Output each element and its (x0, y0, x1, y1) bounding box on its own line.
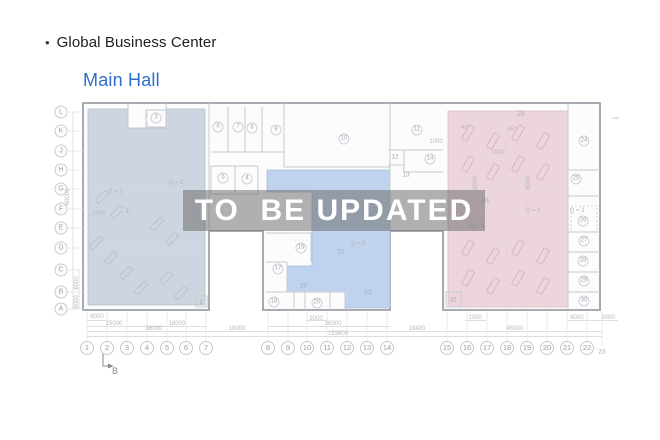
floor-plan: LKJHGFEDCBA12345678910111213141516171819… (0, 0, 660, 440)
watermark-banner: TO BE UPDATED (183, 190, 485, 231)
slide: • Global Business Center Main Hall (0, 0, 660, 440)
section-marker (103, 353, 114, 369)
watermark-text: TO BE UPDATED (195, 196, 474, 226)
